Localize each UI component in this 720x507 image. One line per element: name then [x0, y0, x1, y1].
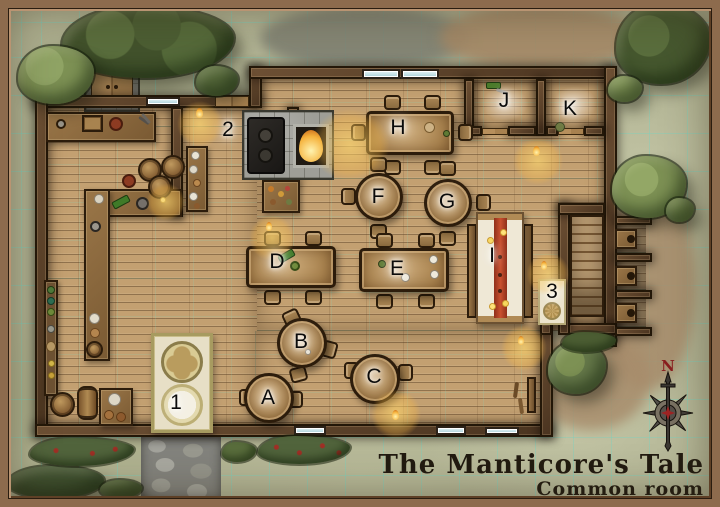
chair	[384, 95, 401, 110]
map-subtitle: Common room	[379, 478, 704, 501]
stove-burner	[258, 128, 273, 143]
bottle	[47, 308, 55, 316]
map-label-G: G	[439, 190, 455, 214]
map-title-block: The Manticore's Tale Common room	[379, 452, 704, 501]
candle	[489, 303, 496, 310]
floor-west-wing	[41, 101, 257, 431]
map-label-3: 3	[546, 280, 558, 304]
plate	[89, 313, 100, 324]
privy-hole	[627, 309, 635, 317]
jug	[90, 221, 101, 232]
window	[401, 69, 439, 79]
candle	[48, 372, 55, 379]
chair	[418, 233, 435, 248]
food-item	[378, 260, 386, 268]
mug	[56, 119, 66, 129]
fire-icon	[299, 130, 323, 162]
torch-icon	[518, 336, 524, 345]
map-label-C: C	[366, 365, 381, 389]
dirt-patch-top-right	[440, 4, 640, 70]
chair	[305, 231, 322, 246]
torch-icon	[392, 410, 399, 420]
compass-rose: N	[628, 358, 708, 452]
runner-stud	[498, 255, 502, 259]
wall-room-jk-mid	[536, 79, 546, 136]
runner-stud	[498, 289, 502, 293]
chair	[264, 290, 281, 305]
food-item	[268, 186, 274, 192]
bottle	[47, 297, 55, 305]
stall-divider	[615, 253, 652, 262]
torch-icon	[196, 108, 203, 118]
torch-icon	[541, 261, 547, 270]
food-item	[285, 186, 290, 191]
chair	[376, 294, 393, 309]
plate	[430, 270, 439, 279]
map-label-E: E	[390, 257, 404, 281]
wall-stairs-top	[558, 203, 605, 215]
bread	[90, 328, 100, 338]
chair	[418, 294, 435, 309]
candle	[487, 237, 494, 244]
map-label-A: A	[261, 386, 275, 410]
candle	[160, 197, 166, 203]
shed-door-handle	[106, 85, 110, 89]
food-item	[278, 191, 284, 197]
wall-room-j-south-b	[508, 126, 536, 136]
barrel	[148, 175, 172, 199]
stall-divider	[615, 290, 652, 299]
chair	[305, 290, 322, 305]
candle-icon	[266, 222, 272, 231]
chair	[439, 231, 456, 246]
food-item	[443, 130, 450, 137]
window	[362, 69, 400, 79]
stove-burner	[258, 148, 273, 163]
bread	[193, 179, 201, 187]
map-label-D: D	[269, 250, 284, 274]
food-item	[286, 199, 292, 205]
privy-hole	[627, 272, 635, 280]
chair	[458, 124, 473, 141]
bottle	[47, 286, 55, 294]
wall-bench	[527, 377, 536, 413]
map-label-F: F	[372, 185, 385, 209]
plate	[191, 151, 200, 160]
chair	[424, 95, 441, 110]
runner-stud	[498, 273, 502, 277]
jar	[47, 325, 55, 333]
table-h	[366, 111, 454, 155]
candle	[500, 229, 507, 236]
window	[294, 426, 326, 435]
plate	[94, 194, 104, 204]
barrel-top	[86, 341, 103, 358]
map-title: The Manticore's Tale	[379, 452, 704, 478]
iron-stove	[247, 117, 285, 174]
shed-door-handle	[114, 85, 118, 89]
barrel-side	[77, 386, 98, 420]
window	[436, 426, 466, 435]
food-item	[194, 203, 200, 209]
staircase	[570, 215, 604, 317]
map-label-2: 2	[222, 118, 234, 142]
pouch	[555, 122, 565, 132]
red-dish	[122, 174, 136, 188]
chair	[341, 188, 356, 205]
chair	[476, 194, 491, 211]
barrel	[50, 392, 75, 417]
crate	[82, 115, 103, 132]
red-dish	[109, 117, 123, 131]
bread	[104, 410, 114, 420]
room-j-door	[482, 128, 508, 135]
stall-divider	[615, 327, 652, 336]
plate	[189, 165, 198, 174]
kettle	[136, 197, 149, 210]
bench	[523, 224, 533, 318]
map-label-B: B	[294, 330, 308, 354]
chair	[376, 233, 393, 248]
plate	[429, 255, 438, 264]
chair	[439, 161, 456, 176]
map-label-H: H	[390, 116, 405, 140]
candle	[48, 360, 55, 367]
plate	[108, 393, 121, 406]
map-label-I: I	[489, 244, 495, 268]
compass-north-label: N	[661, 358, 675, 375]
dark-ground-patch	[260, 6, 470, 70]
chair	[351, 124, 366, 141]
stone-path	[141, 437, 221, 499]
candle	[502, 300, 509, 307]
tavern-map: 123ABCDEFGHIJK N The Manticore's Tale Co…	[0, 0, 720, 507]
plate	[189, 192, 198, 201]
window	[485, 427, 519, 435]
privy-hole	[627, 235, 635, 243]
sack	[46, 341, 56, 352]
wall-room-k-south-b	[584, 126, 604, 136]
map-label-K: K	[563, 97, 577, 121]
chair	[264, 231, 281, 246]
map-label-1: 1	[170, 391, 182, 415]
food-item	[270, 199, 276, 205]
tile-emblem	[543, 302, 561, 320]
window	[146, 97, 180, 106]
torch-icon	[533, 146, 540, 156]
chair	[370, 157, 387, 172]
kitchen-back-door	[215, 96, 249, 107]
food-item	[290, 261, 300, 271]
map-label-J: J	[499, 89, 510, 113]
plate	[424, 122, 435, 133]
chair	[398, 364, 413, 381]
rug-medallion-quatrefoil	[161, 341, 203, 383]
bread	[116, 412, 126, 422]
